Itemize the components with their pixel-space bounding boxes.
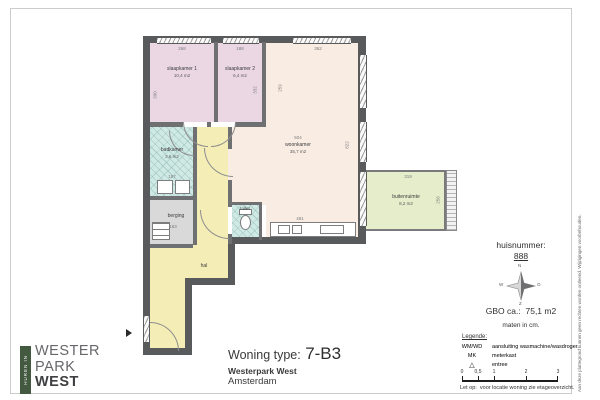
- label-buitenruimte: buitenruimte: [392, 194, 420, 200]
- dim-slaapkamer1-width: 268: [178, 46, 186, 51]
- note-text: Let op: voor locatie woning zie etageove…: [460, 385, 574, 391]
- label-woonkamer: woonkamer: [285, 142, 311, 148]
- label-slaapkamer-1: slaapkamer 1: [167, 66, 197, 72]
- scale-tick-05: 0,5: [475, 369, 482, 375]
- label-badkamer: badkamer: [161, 147, 183, 153]
- iwall-berging-hal: [150, 244, 193, 248]
- wall-hal-step: [185, 278, 235, 285]
- dim-buitenruimte-width: 319: [404, 174, 412, 179]
- kitchen-sink-2: [292, 225, 302, 234]
- wall-bottom-living: [228, 237, 366, 244]
- area-woonkamer: 35,7 m2: [290, 149, 306, 154]
- balcony-railing: [446, 170, 457, 231]
- iwall-toilet-top: [228, 202, 262, 205]
- washbasin-2: [175, 180, 190, 194]
- dim-woonkamer-height: 822: [345, 141, 350, 149]
- iwall-bedrooms-bottom-1: [150, 122, 183, 127]
- legend-title: Legende:: [462, 334, 487, 340]
- legend-val-mk: meterkast: [492, 353, 516, 359]
- scale-tick-2: 2: [525, 369, 528, 375]
- iwall-bedrooms: [214, 42, 218, 122]
- logo-green-bar: HUREN IN: [20, 346, 31, 394]
- dim-slaapkamer2-width: 188: [236, 46, 244, 51]
- area-slaapkamer-2: 6,4 m2: [233, 73, 247, 78]
- gbo-label: GBO ca.:: [486, 306, 521, 316]
- window-top-1: [157, 37, 211, 44]
- woning-type-label: Woning type:: [228, 348, 301, 362]
- logo-line-3: WEST: [35, 375, 100, 391]
- dim-berging-width: 183: [169, 224, 177, 229]
- window-top-3: [293, 37, 351, 44]
- kitchen-sink-1: [278, 225, 290, 234]
- room-woonkamer: [266, 42, 358, 237]
- room-slaapkamer-2: [218, 42, 262, 122]
- gbo-text: GBO ca.: 75,1 m2: [461, 306, 581, 316]
- scale-bar: 0 0,5 1 2 3: [462, 369, 558, 381]
- area-badkamer: 3,6 m2: [165, 154, 179, 159]
- dim-slaapkamer2-depth: 332: [253, 86, 258, 94]
- logo-line-2: PARK: [35, 360, 100, 376]
- room-hal-mid: [150, 245, 228, 280]
- dim-slaapkamer1-depth: 390: [153, 91, 158, 99]
- disclaimer-text: Aan deze plattegrond kunnen geen rechten…: [577, 62, 582, 392]
- iwall-bedroom2-living: [262, 42, 266, 127]
- logo-vertical-text: HUREN IN: [23, 355, 28, 385]
- kitchen-cooktop: [320, 225, 344, 234]
- window-top-2: [223, 37, 259, 44]
- compass-icon: N O Z W: [503, 268, 539, 304]
- huisnummer-label: huisnummer:: [466, 240, 576, 250]
- label-toilet: toilet: [240, 206, 250, 212]
- wall-hal-lower-right: [185, 285, 192, 355]
- legend-key-wmwd: WM/WD: [458, 344, 486, 350]
- washer-dryer: [152, 222, 170, 240]
- window-right-2: [359, 122, 367, 162]
- dim-badkamer-width: 157: [168, 174, 176, 179]
- label-slaapkamer-2: slaapkamer 2: [225, 66, 255, 72]
- woning-type-value: 7-B3: [305, 344, 341, 363]
- legend-key-entree-icon: △: [458, 361, 486, 369]
- scale-tick-0: 0: [461, 369, 464, 375]
- room-woonkamer-ext: [228, 127, 266, 205]
- iwall-bedrooms-bottom-3: [235, 122, 262, 127]
- iwall-badkamer-berging: [150, 196, 193, 200]
- dim-kitchen-width: 481: [296, 216, 304, 221]
- area-slaapkamer-1: 10,4 m2: [174, 73, 190, 78]
- washbasin-1: [157, 180, 173, 194]
- legend-val-wmwd: aansluiting wasmachine/wasdroger: [492, 344, 578, 350]
- legend-val-entree: entree: [492, 362, 508, 368]
- compass-e: O: [537, 282, 541, 287]
- dim-buitenruimte-depth: 256: [436, 196, 441, 204]
- project-city: Amsterdam: [228, 376, 277, 387]
- area-buitenruimte: 8,2 m2: [399, 201, 413, 206]
- balcony-door: [359, 172, 367, 226]
- floorplan: slaapkamer 1 10,4 m2 slaapkamer 2 6,4 m2…: [0, 0, 600, 400]
- note-label: Let op:: [460, 385, 477, 391]
- dim-woonkamer-left: 259: [278, 84, 283, 92]
- note-body: voor locatie woning zie etageoverzicht.: [480, 385, 574, 391]
- toilet-bowl: [240, 215, 251, 230]
- room-slaapkamer-1: [150, 42, 214, 122]
- dim-woonkamer-width: 504: [294, 135, 302, 140]
- dim-woonkamer-top: 362: [314, 46, 322, 51]
- entree-triangle-icon: [126, 329, 132, 337]
- gbo-value: 75,1 m2: [525, 306, 556, 316]
- project-name: Westerpark West: [228, 366, 297, 376]
- scale-tick-3: 3: [557, 369, 560, 375]
- entrance-opening: [144, 316, 149, 342]
- wall-left: [143, 36, 150, 355]
- compass-n: N: [518, 263, 521, 268]
- window-right-1: [359, 55, 367, 108]
- label-berging: berging: [168, 213, 185, 219]
- scale-tick-1: 1: [493, 369, 496, 375]
- label-hal: hal: [201, 263, 208, 269]
- units-text: maten in cm.: [461, 322, 581, 329]
- logo-line-1: WESTER: [35, 344, 100, 360]
- huisnummer-value: 888: [466, 251, 576, 261]
- iwall-toilet-right: [259, 202, 262, 240]
- legend-key-mk: MK: [458, 353, 486, 359]
- compass-w: W: [499, 282, 503, 287]
